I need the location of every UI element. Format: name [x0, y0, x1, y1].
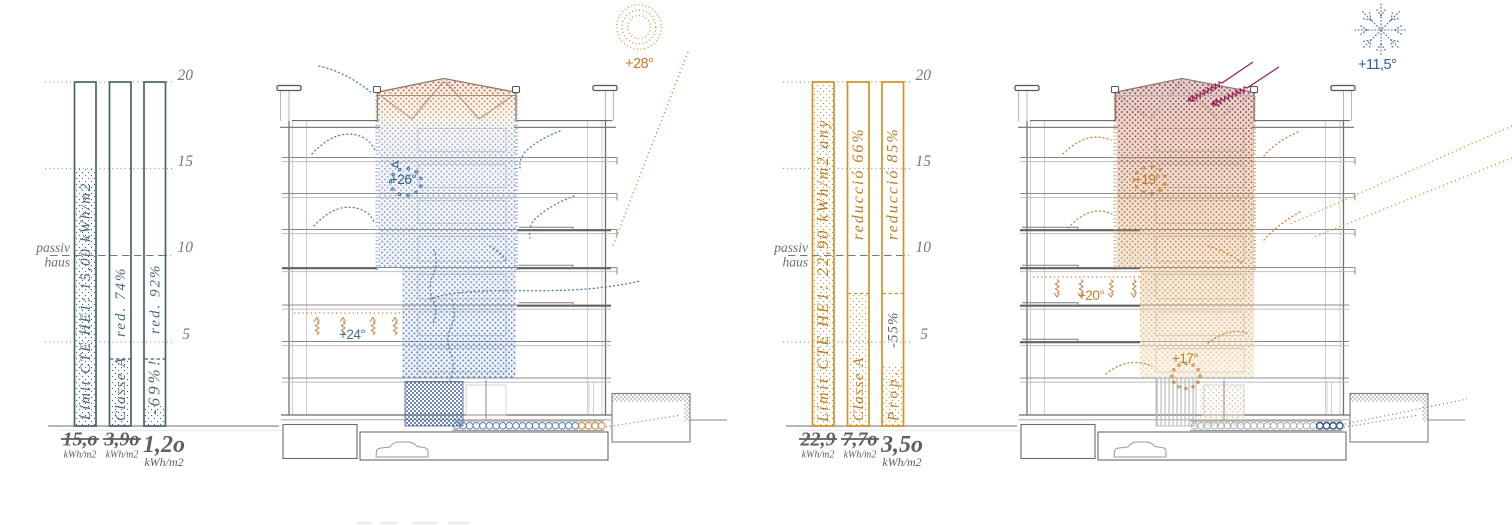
svg-text:reducció 66%: reducció 66% — [850, 127, 867, 240]
svg-text:+19°: +19° — [1134, 172, 1160, 187]
svg-text:+20°: +20° — [1078, 288, 1104, 303]
svg-text:red. 74%: red. 74% — [113, 267, 129, 337]
svg-text:passiv: passiv — [773, 240, 808, 255]
svg-text:20: 20 — [178, 67, 194, 84]
svg-text:Límit CTE HE1: 22,90 kWh/m2 an: Límit CTE HE1: 22,90 kWh/m2 any — [815, 118, 832, 423]
svg-text:-69%!: -69%! — [145, 358, 164, 415]
svg-text:haus: haus — [782, 255, 808, 270]
svg-text:Classe A: Classe A — [851, 356, 867, 421]
svg-text:15: 15 — [178, 153, 194, 170]
svg-text:Prop.: Prop. — [886, 368, 902, 422]
svg-text:kWh/m2: kWh/m2 — [144, 455, 183, 469]
svg-text:15: 15 — [916, 153, 932, 170]
svg-text:5: 5 — [920, 326, 928, 343]
svg-text:+11,5°: +11,5° — [1358, 57, 1396, 73]
svg-text:5: 5 — [182, 326, 190, 343]
svg-text:-55%: -55% — [886, 312, 902, 349]
svg-text:10: 10 — [916, 239, 932, 256]
svg-text:kWh/m2: kWh/m2 — [882, 455, 921, 469]
svg-text:kWh/m2: kWh/m2 — [844, 450, 877, 461]
svg-text:kWh/m2: kWh/m2 — [802, 450, 835, 461]
svg-text:haus: haus — [44, 255, 70, 270]
svg-text:kWh/m2: kWh/m2 — [106, 450, 139, 461]
svg-text:kWh/m2: kWh/m2 — [64, 450, 97, 461]
svg-text:red. 92%: red. 92% — [148, 264, 164, 334]
svg-text:passiv: passiv — [35, 240, 70, 255]
svg-text:+24°: +24° — [339, 327, 365, 342]
svg-text:10: 10 — [178, 239, 194, 256]
svg-text:+28°: +28° — [625, 56, 653, 72]
svg-text:20: 20 — [916, 67, 932, 84]
svg-text:Límit CTE HE1: 15,00 kWh/m2: Límit CTE HE1: 15,00 kWh/m2 — [78, 182, 94, 421]
svg-text:Classe A: Classe A — [113, 356, 129, 421]
svg-text:reducció 85%: reducció 85% — [885, 127, 902, 240]
